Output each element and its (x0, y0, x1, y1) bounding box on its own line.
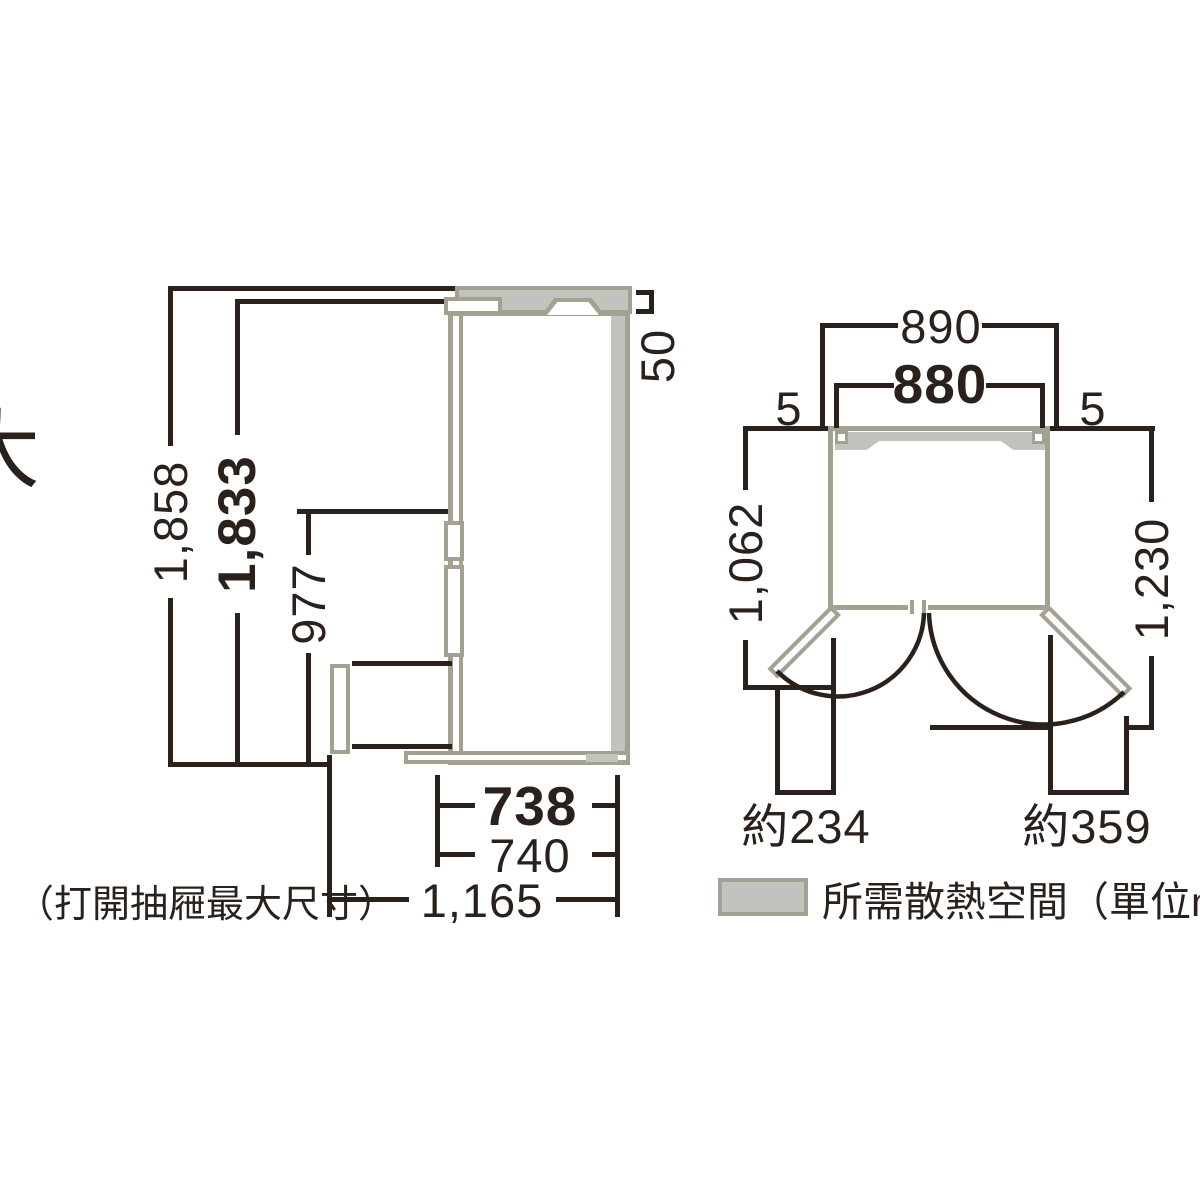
fridge-top-front-step (444, 297, 502, 315)
left-swing-depth-bottom-tick (743, 685, 835, 690)
side-lower-height-label: 977 (278, 504, 338, 704)
dimension-diagram-page: { "side": { "overall_height": "1,858", "… (0, 0, 1200, 1200)
legend-swatch (718, 878, 808, 916)
door-depth-label: 740 (430, 832, 630, 878)
fridge-side-body (448, 311, 630, 765)
right-swing-depth-bottom-tick (1126, 725, 1154, 730)
clearance-right-label: 5 (1043, 385, 1143, 431)
mid-drawer-front (444, 565, 464, 657)
drawer-open-depth-label: 1,165 (382, 877, 582, 923)
top-clearance-label: 50 (627, 256, 687, 456)
side-overall-height-line-lower (168, 598, 173, 767)
legend-label: 所需散熱空間（單位mm） (822, 876, 1200, 920)
door-center-gap-mark-left (910, 600, 914, 614)
hinge-mark-left (835, 431, 848, 444)
ice-compartment-front (444, 521, 464, 561)
drawer-rail-bottom (352, 744, 452, 749)
side-overall-height-label: 1,858 (140, 422, 200, 622)
left-swing-depth-label: 1,062 (715, 463, 775, 663)
side-body-height-line-lower (235, 613, 240, 767)
drawer-open-note: （打開抽屜最大尺寸） (16, 878, 396, 922)
side-body-height-line-upper (235, 299, 240, 435)
side-body-height-label: 1,833 (207, 424, 267, 624)
fridge-caster (586, 754, 618, 762)
body-width-label: 880 (840, 358, 1040, 410)
open-drawer-front-panel (330, 664, 350, 754)
left-protrusion-bracket-inner (831, 638, 836, 795)
hinge-mark-right (1032, 431, 1045, 444)
back-clearance-strip (611, 316, 625, 760)
floor-line (168, 762, 330, 767)
right-swing-front-line (930, 725, 1052, 730)
left-protrusion-bracket-outer (775, 685, 780, 795)
drawer-rail-top (352, 661, 452, 666)
body-depth-label: 738 (430, 780, 630, 832)
left-door-open (767, 605, 841, 679)
fridge-top-body (828, 426, 1050, 610)
clearance-left-label: 5 (739, 385, 839, 431)
right-protrusion-bracket-outer (1124, 716, 1129, 795)
right-swing-depth-label: 1,230 (1121, 479, 1181, 679)
overall-width-label: 890 (841, 303, 1041, 349)
side-body-height-top-tick (235, 299, 446, 304)
right-protrusion-label: 約359 (987, 799, 1187, 845)
clipped-edge-character: 大 (0, 408, 40, 494)
door-center-gap-mark-right (922, 600, 926, 614)
side-overall-height-top-tick (168, 286, 462, 291)
right-door-open (1039, 605, 1132, 698)
right-protrusion-bracket-inner (1048, 635, 1053, 795)
left-protrusion-label: 約234 (706, 799, 906, 845)
